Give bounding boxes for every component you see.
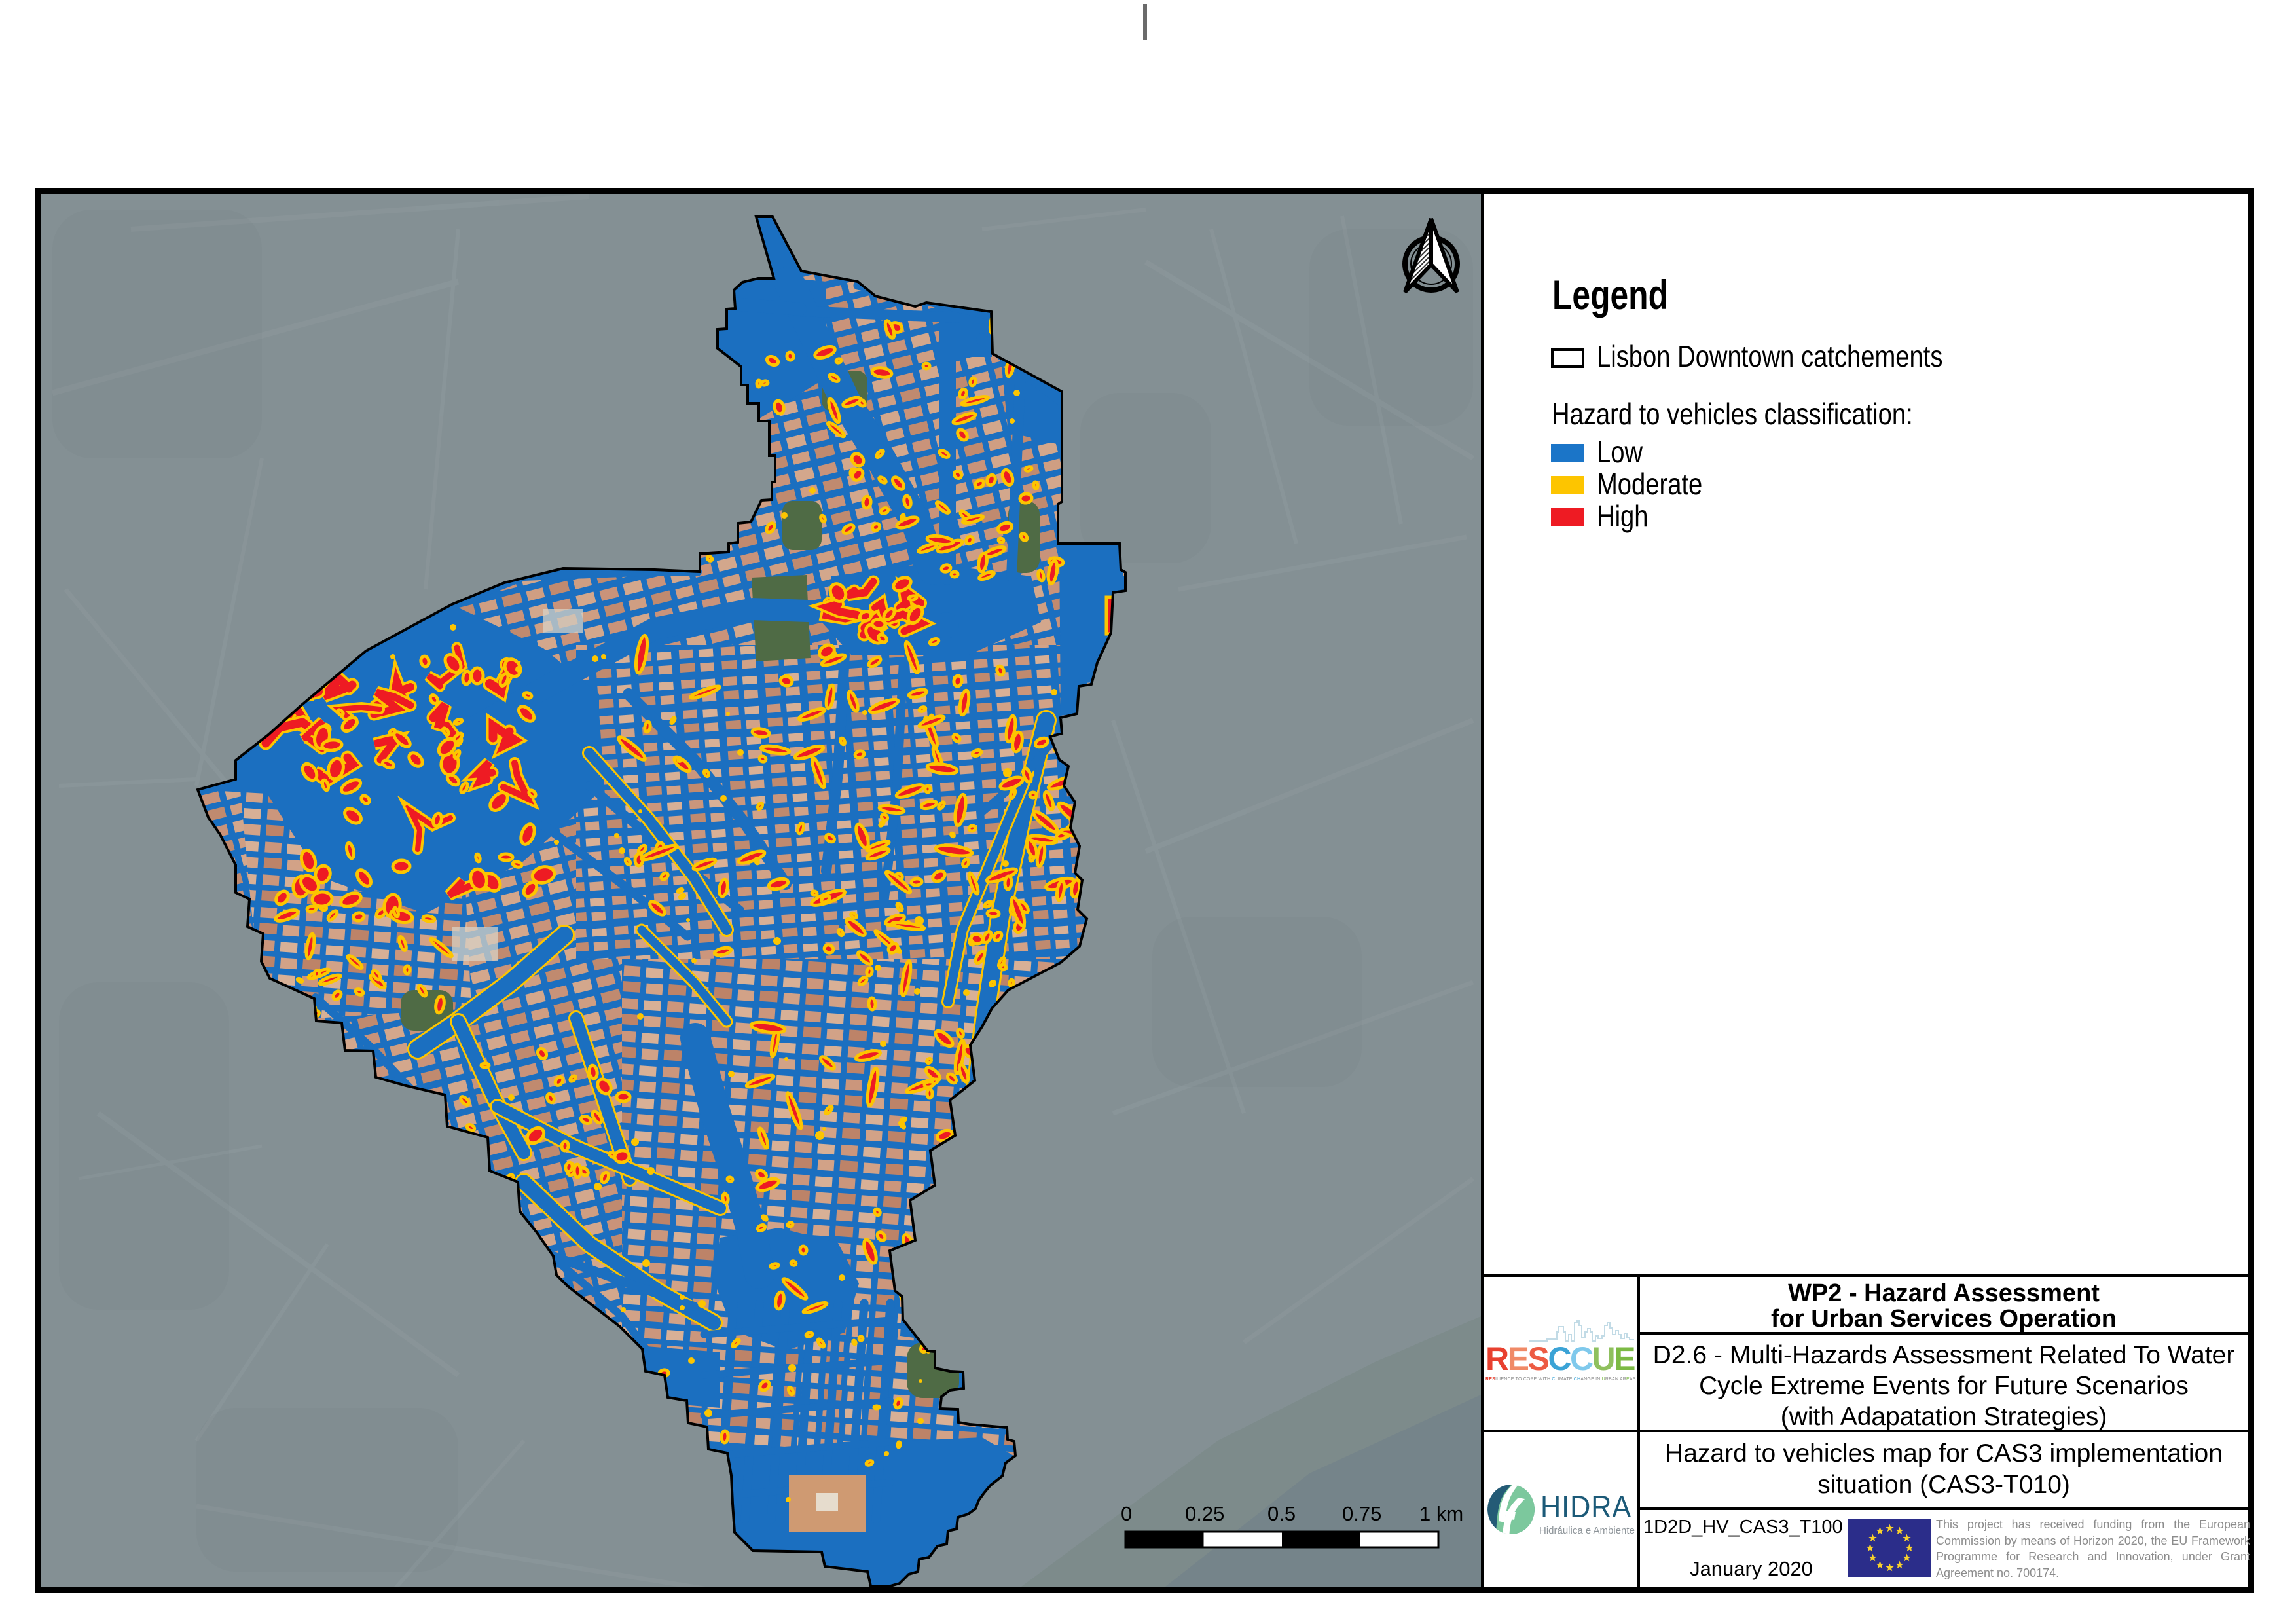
- svg-text:0: 0: [1121, 1502, 1132, 1525]
- svg-text:0.25: 0.25: [1185, 1502, 1224, 1525]
- svg-text:0.75: 0.75: [1342, 1502, 1381, 1525]
- svg-text:1 km: 1 km: [1419, 1502, 1463, 1525]
- svg-text:0.5: 0.5: [1267, 1502, 1296, 1525]
